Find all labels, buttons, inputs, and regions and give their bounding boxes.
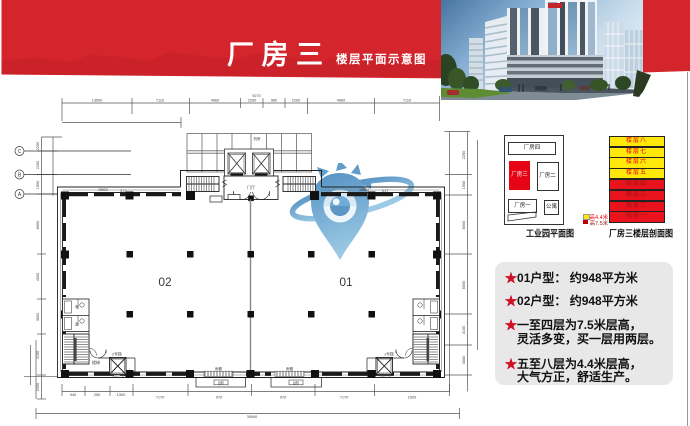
svg-text:台阶: 台阶 — [218, 380, 225, 385]
svg-text:01: 01 — [339, 275, 353, 289]
svg-text:02: 02 — [158, 275, 172, 289]
svg-text:7170: 7170 — [340, 396, 348, 400]
svg-text:男: 男 — [75, 305, 79, 310]
svg-text:相连平台: 相连平台 — [379, 372, 392, 377]
svg-text:A: A — [18, 192, 22, 198]
svg-text:2260: 2260 — [292, 99, 300, 103]
svg-text:门厅: 门厅 — [247, 184, 255, 191]
svg-text:3100: 3100 — [462, 326, 466, 334]
svg-text:6000: 6000 — [36, 221, 40, 229]
svg-text:9270: 9270 — [252, 94, 260, 98]
svg-text:4960: 4960 — [211, 99, 219, 103]
svg-text:C: C — [18, 149, 22, 155]
svg-text:1500: 1500 — [408, 396, 416, 400]
svg-text:4500: 4500 — [36, 273, 40, 281]
svg-text:B: B — [18, 173, 22, 179]
svg-text:7110: 7110 — [403, 99, 411, 103]
svg-text:5.17: 5.17 — [382, 189, 388, 193]
svg-text:3000: 3000 — [462, 356, 466, 364]
svg-text:2号梯: 2号梯 — [112, 352, 122, 357]
svg-text:6000: 6000 — [462, 221, 466, 229]
svg-text:6000: 6000 — [462, 281, 466, 289]
svg-text:39540: 39540 — [247, 415, 258, 419]
svg-text:2250: 2250 — [36, 161, 40, 169]
svg-text:2260: 2260 — [248, 99, 256, 103]
svg-text:雨棚: 雨棚 — [215, 366, 222, 371]
svg-text:1990/2: 1990/2 — [359, 188, 369, 192]
svg-text:7110: 7110 — [156, 99, 164, 103]
svg-text:4100: 4100 — [36, 351, 40, 359]
svg-text:1950: 1950 — [36, 181, 40, 189]
svg-text:1300: 1300 — [117, 393, 125, 397]
svg-text:机房: 机房 — [254, 136, 262, 141]
svg-text:2250: 2250 — [462, 151, 466, 159]
svg-text:楼梯: 楼梯 — [92, 359, 100, 365]
svg-text:7170: 7170 — [156, 396, 164, 400]
svg-text:3500: 3500 — [36, 313, 40, 321]
svg-text:970: 970 — [280, 396, 286, 400]
svg-text:1950: 1950 — [462, 181, 466, 189]
svg-text:960: 960 — [271, 99, 277, 103]
svg-text:1990/2: 1990/2 — [98, 188, 108, 192]
svg-text:250: 250 — [94, 393, 100, 397]
svg-text:1号梯: 1号梯 — [384, 352, 394, 357]
svg-text:970: 970 — [216, 396, 222, 400]
svg-text:台阶: 台阶 — [293, 380, 300, 385]
svg-text:女: 女 — [75, 321, 79, 327]
svg-text:2400: 2400 — [36, 383, 40, 391]
svg-text:940: 940 — [70, 393, 76, 397]
svg-text:2250: 2250 — [36, 142, 40, 150]
svg-text:相连平台: 相连平台 — [112, 372, 125, 377]
svg-text:5.17: 5.17 — [120, 189, 126, 193]
svg-text:4960: 4960 — [337, 99, 345, 103]
svg-text:雨棚: 雨棚 — [286, 366, 294, 371]
svg-text:13500: 13500 — [92, 99, 103, 103]
